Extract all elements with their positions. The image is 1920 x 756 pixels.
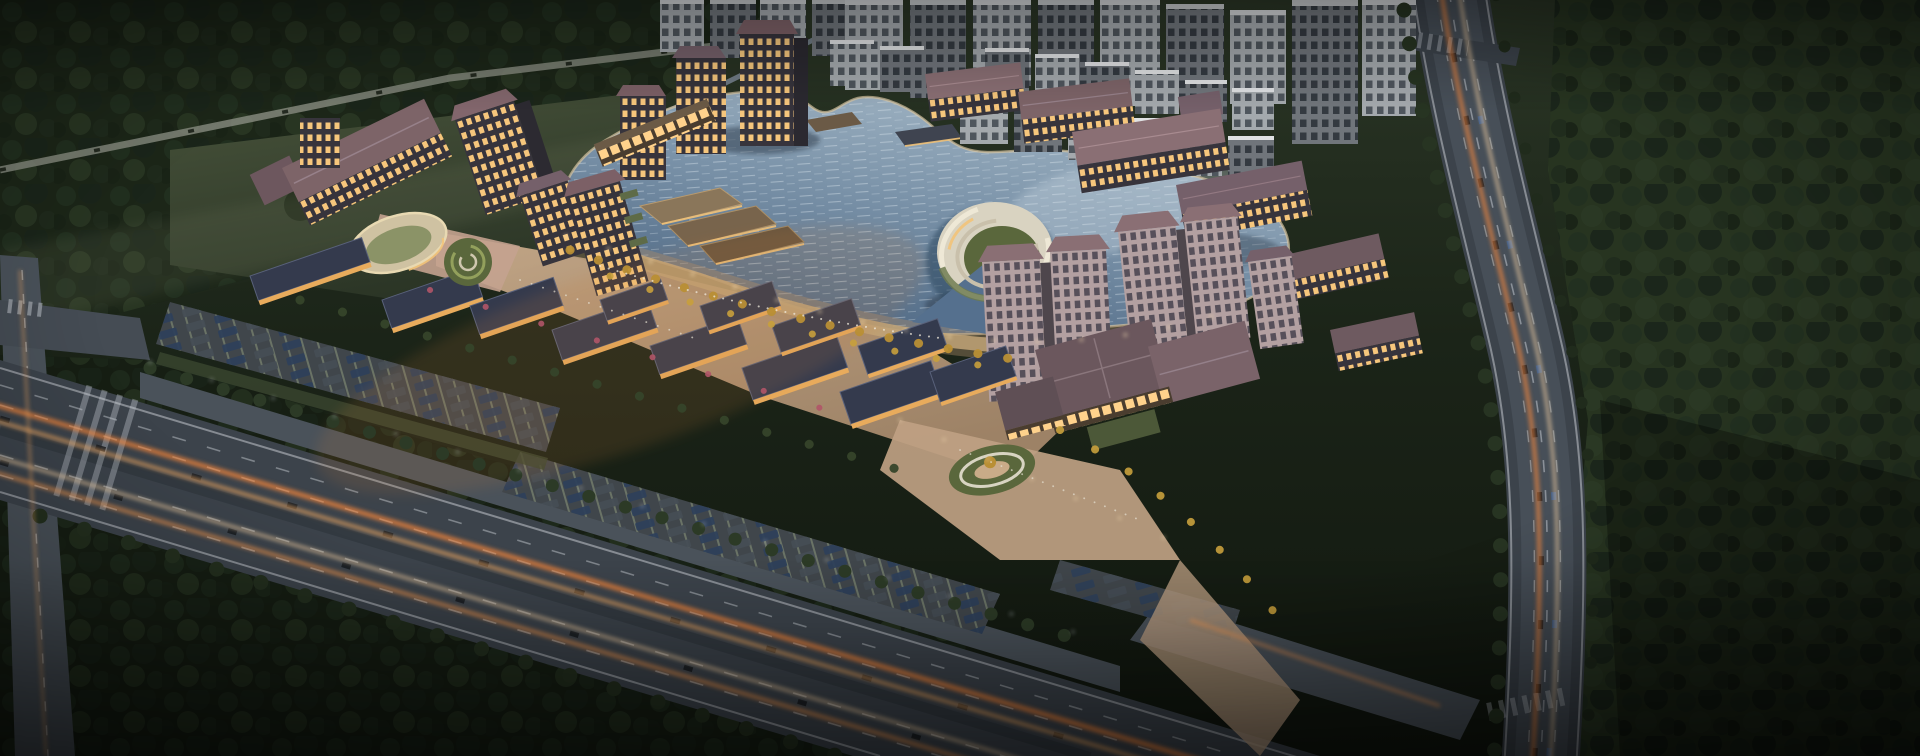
vignette [0,0,1920,756]
aerial-rendering [0,0,1920,756]
aerial-rendering-stage [0,0,1920,756]
